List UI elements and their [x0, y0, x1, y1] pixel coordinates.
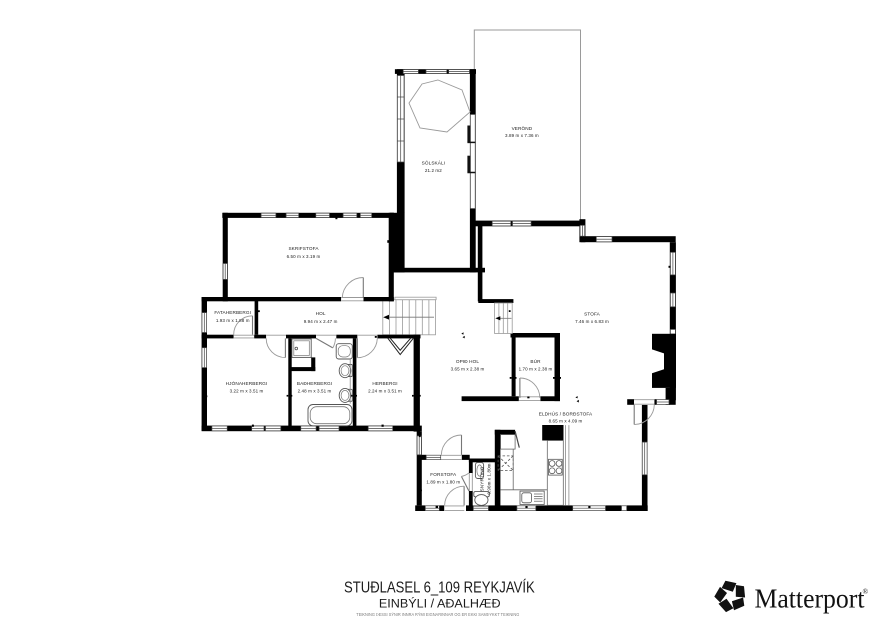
svg-text:7.46 m x 6.83 m: 7.46 m x 6.83 m	[575, 319, 609, 324]
svg-text:3.89 m x 7.36 m: 3.89 m x 7.36 m	[505, 133, 539, 138]
svg-text:3.65 m x 2.38 m: 3.65 m x 2.38 m	[451, 366, 485, 371]
svg-text:STUÐLASEL 6_109 REYKJAVÍK: STUÐLASEL 6_109 REYKJAVÍK	[344, 578, 535, 597]
svg-text:HOL: HOL	[316, 311, 326, 316]
svg-text:8.65 m x 4.09 m: 8.65 m x 4.09 m	[549, 418, 583, 423]
svg-text:1.70 m x 2.38 m: 1.70 m x 2.38 m	[519, 366, 553, 371]
svg-text:SÓLSKÁLI: SÓLSKÁLI	[422, 160, 445, 166]
svg-text:Matterport: Matterport	[755, 583, 865, 613]
svg-text:2.24 m x 3.51 m: 2.24 m x 3.51 m	[368, 389, 402, 394]
svg-text:BÚR: BÚR	[530, 358, 541, 364]
svg-text:HJÓNAHERBERGI: HJÓNAHERBERGI	[226, 380, 268, 386]
svg-text:FORSTOFA: FORSTOFA	[430, 472, 457, 477]
svg-text:EINBÝLI / AÐALHÆÐ: EINBÝLI / AÐALHÆÐ	[379, 596, 501, 611]
svg-text:0.96m x 1.80m: 0.96m x 1.80m	[487, 463, 492, 494]
svg-text:TEIKNING ÞESSI SÝNIR INNRA RÝM: TEIKNING ÞESSI SÝNIR INNRA RÝMI EIGNARIN…	[356, 612, 520, 617]
svg-text:®: ®	[863, 587, 869, 596]
svg-text:FATAHERBERGI: FATAHERBERGI	[214, 310, 251, 315]
svg-text:BAÐHERBERGI: BAÐHERBERGI	[297, 381, 332, 386]
svg-text:STOFA: STOFA	[584, 312, 601, 317]
svg-text:2.48 m x 3.51 m: 2.48 m x 3.51 m	[298, 389, 332, 394]
svg-text:VERÖND: VERÖND	[512, 125, 533, 131]
svg-text:1.89 m x 1.80 m: 1.89 m x 1.80 m	[426, 480, 460, 485]
svg-text:1.93 m x 1.88 m: 1.93 m x 1.88 m	[216, 318, 250, 323]
svg-text:9.94 m x 2.47 m: 9.94 m x 2.47 m	[304, 319, 338, 324]
svg-text:SKRIFSTOFA: SKRIFSTOFA	[288, 246, 319, 251]
svg-text:OPIÐ HOL: OPIÐ HOL	[456, 359, 479, 364]
svg-text:21.2 m2: 21.2 m2	[425, 168, 442, 173]
svg-text:SNYRTING: SNYRTING	[480, 466, 485, 491]
svg-text:6.50 m x 3.19 m: 6.50 m x 3.19 m	[287, 254, 321, 259]
svg-text:ELDHÚS / BORÐSTOFA: ELDHÚS / BORÐSTOFA	[539, 410, 593, 416]
svg-text:HERBERGI: HERBERGI	[372, 381, 397, 386]
svg-text:3.22 m x 3.51 m: 3.22 m x 3.51 m	[230, 389, 264, 394]
